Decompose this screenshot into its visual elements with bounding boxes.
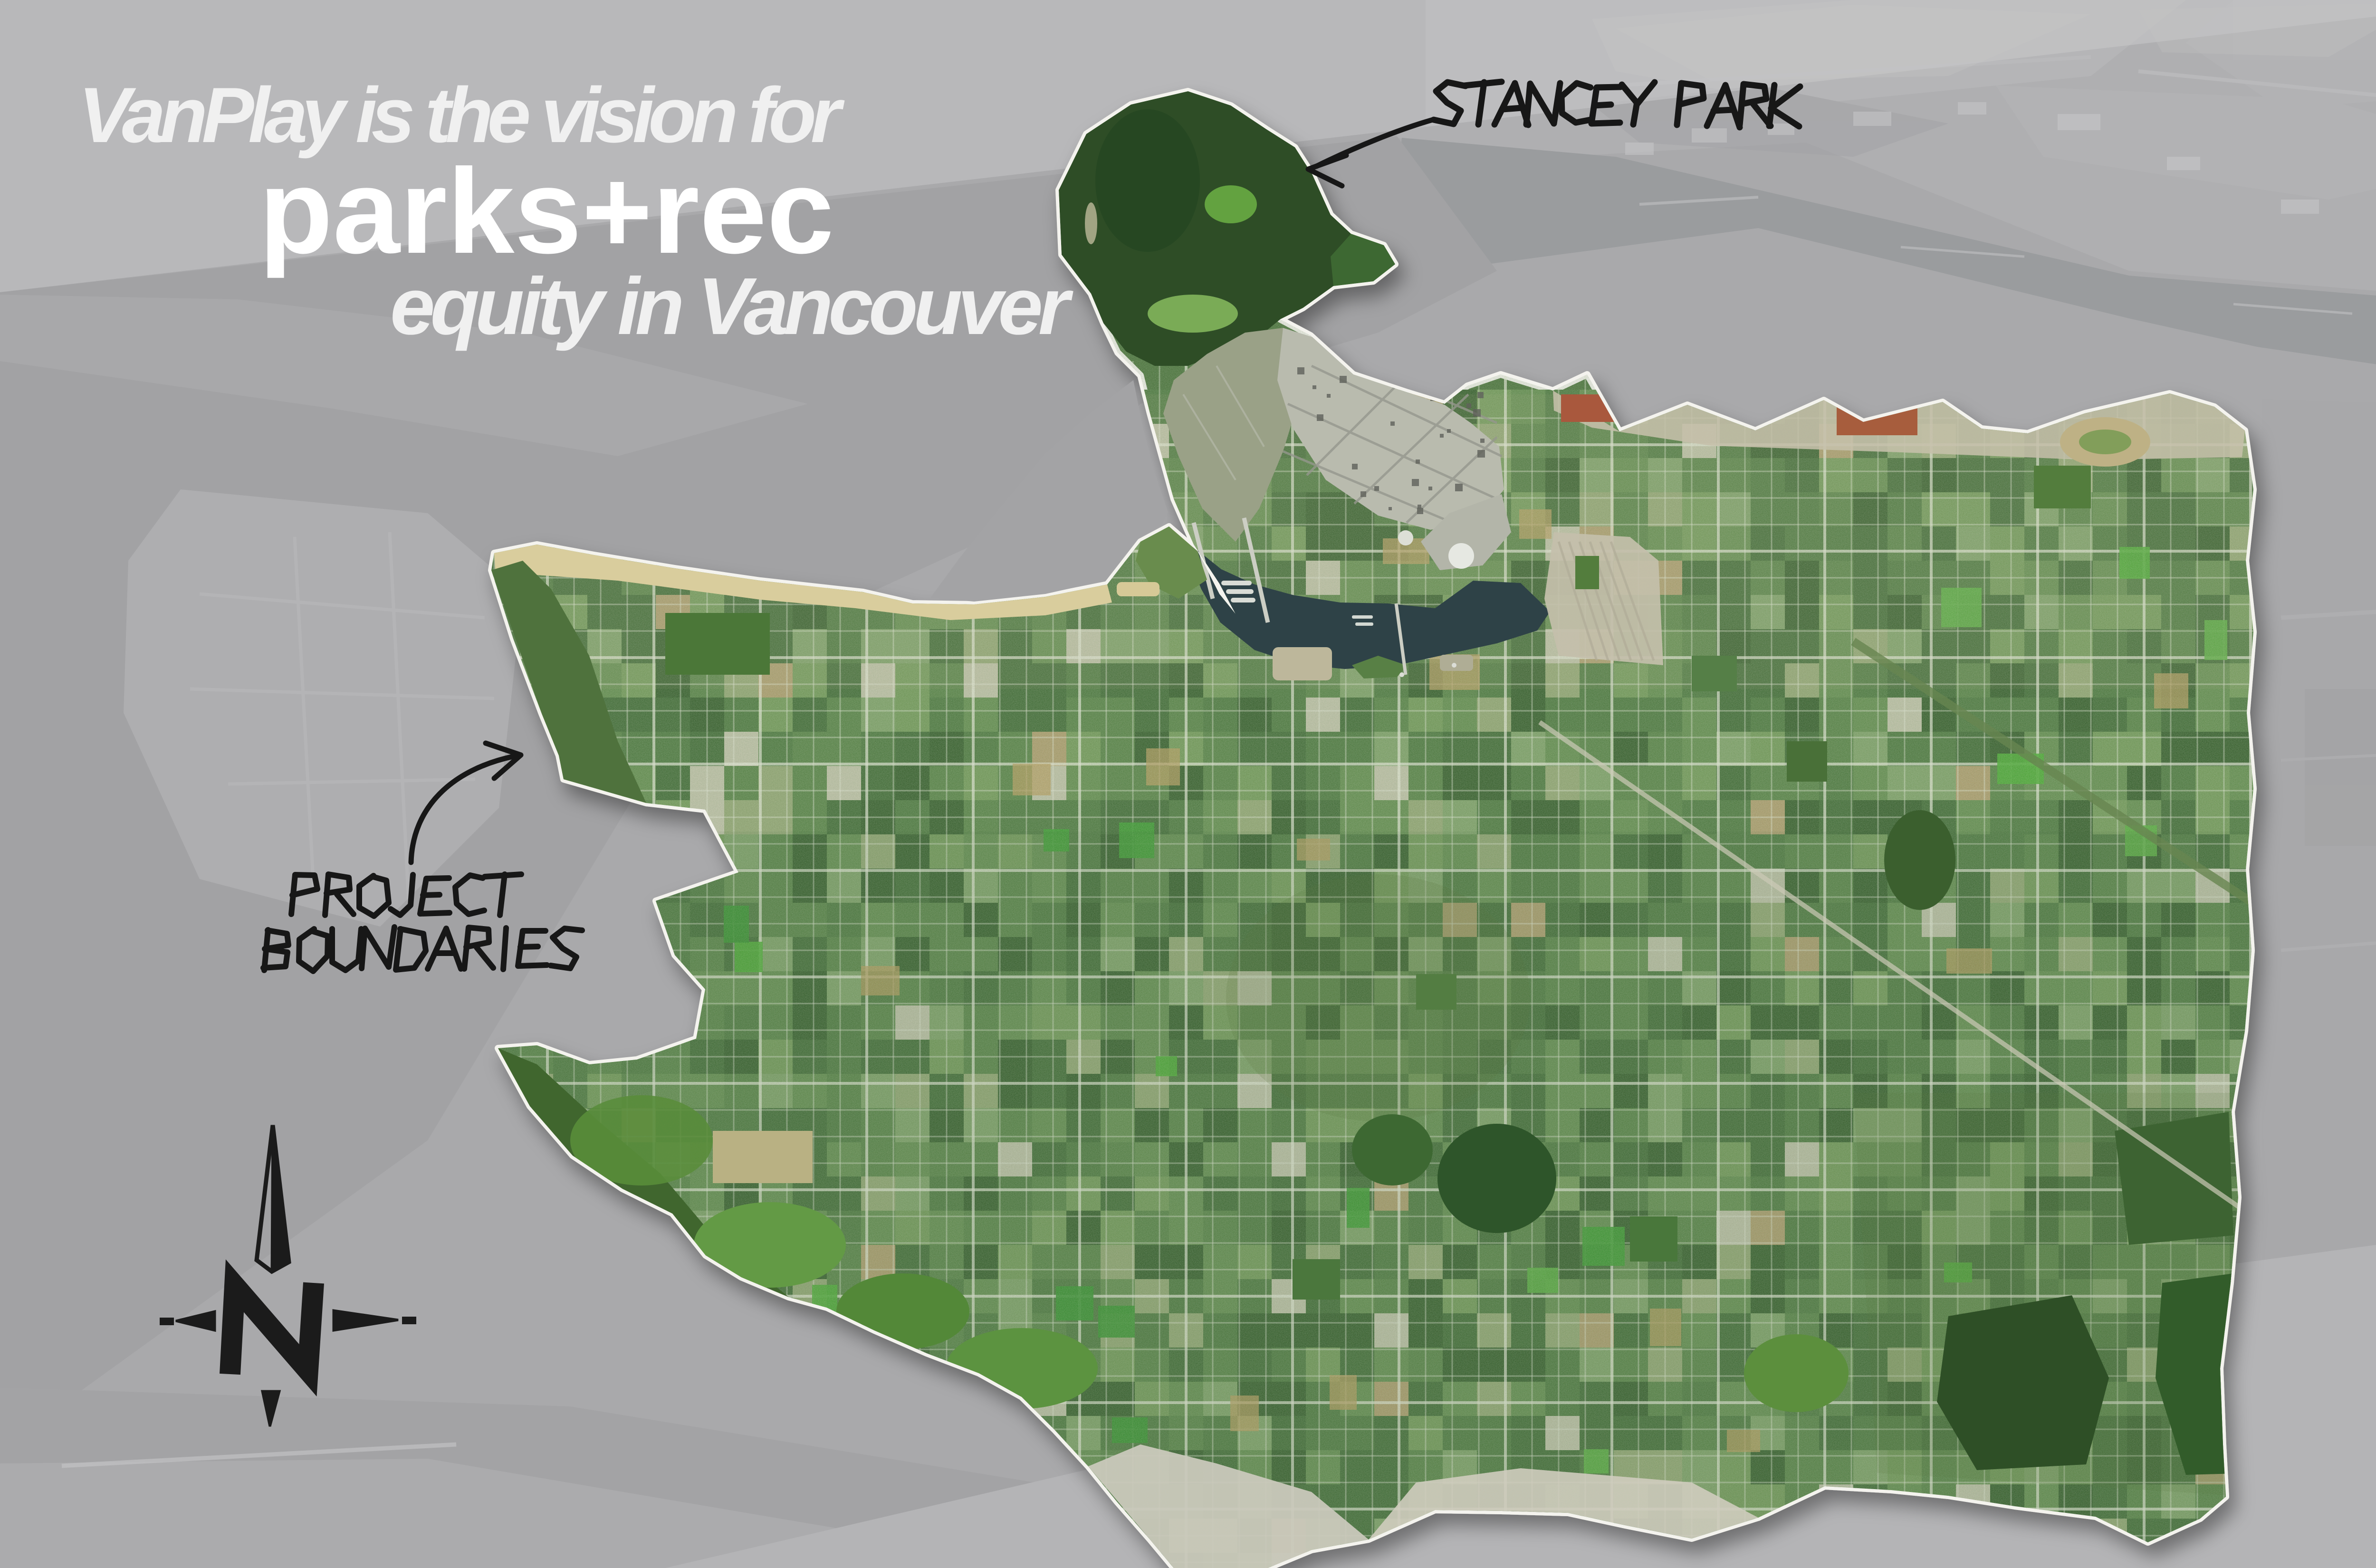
svg-text:parks+rec: parks+rec <box>259 143 834 278</box>
svg-text:equity in Vancouver: equity in Vancouver <box>390 261 1073 352</box>
